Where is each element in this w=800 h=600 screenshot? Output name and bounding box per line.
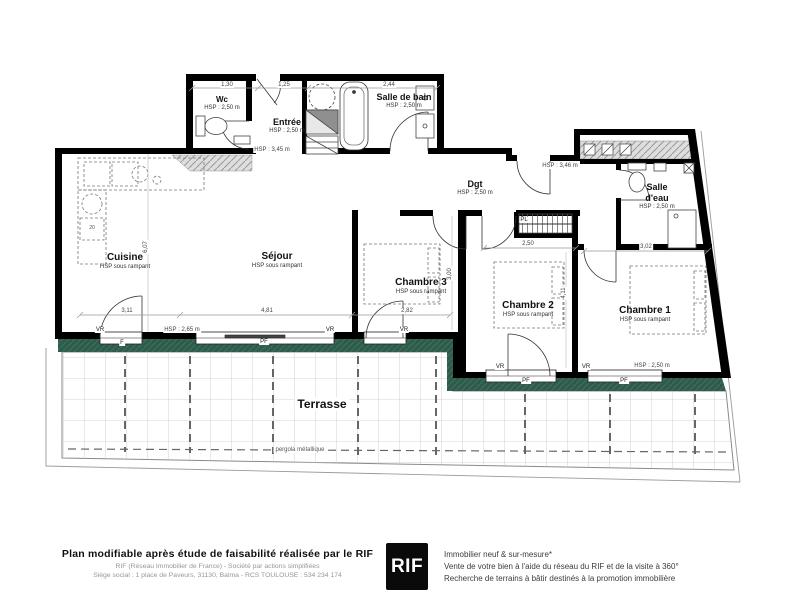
- room-label-terrasse: Terrasse: [294, 397, 349, 411]
- footer-title: Plan modifiable après étude de faisabili…: [55, 548, 380, 560]
- footer-company-line: RIF (Réseau Immobilier de France) - Soci…: [55, 562, 380, 571]
- floorplan-drawing: [0, 0, 800, 540]
- dimension-lines: [77, 85, 711, 368]
- footer-left-block: Plan modifiable après étude de faisabili…: [55, 548, 380, 580]
- footer-service-1: Immobilier neuf & sur-mesure*: [444, 549, 744, 561]
- pergola-note: pergola métallique: [273, 447, 326, 453]
- floor-plan: Wc HSP : 2,50 m Entrée HSP : 2,50 m Sall…: [0, 0, 800, 540]
- footer-address-line: Siège social : 1 place de Paveurs, 31130…: [55, 571, 380, 580]
- rif-logo: RIF: [386, 543, 428, 590]
- footer-services-block: Immobilier neuf & sur-mesure* Vente de v…: [444, 549, 744, 585]
- floorplan-page: Wc HSP : 2,50 m Entrée HSP : 2,50 m Sall…: [0, 0, 800, 600]
- footer: Plan modifiable après étude de faisabili…: [0, 540, 800, 600]
- dashed-furniture: [78, 158, 706, 334]
- footer-service-3: Recherche de terrains à bâtir destinés à…: [444, 573, 744, 585]
- footer-service-2: Vente de votre bien à l'aide du réseau d…: [444, 561, 744, 573]
- hatch-areas: [172, 141, 692, 171]
